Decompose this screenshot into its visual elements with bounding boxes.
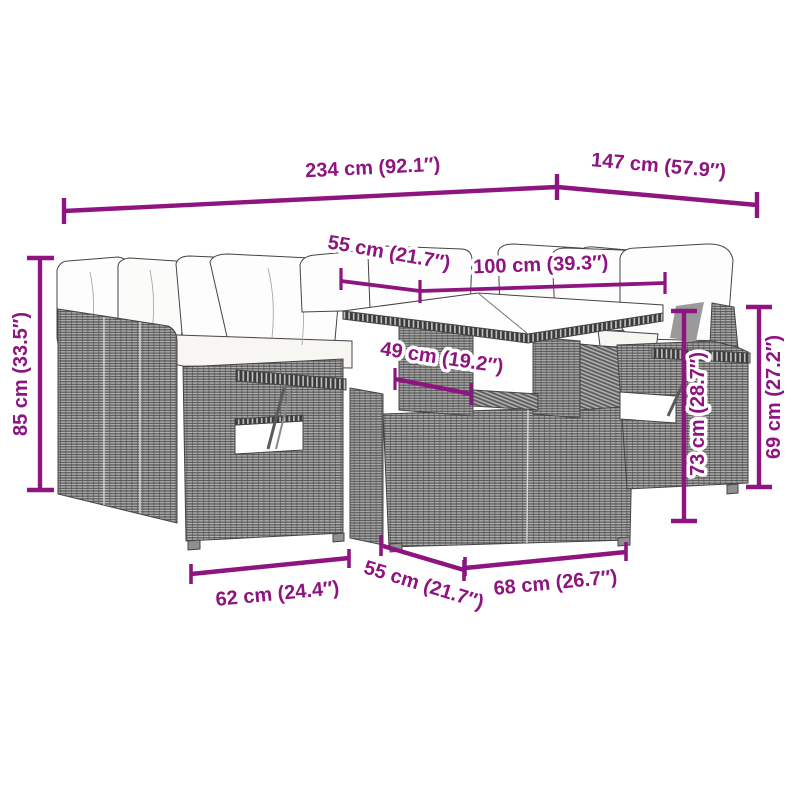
svg-text:73 cm (28.7″): 73 cm (28.7″)	[687, 352, 709, 476]
svg-text:85 cm (33.5″): 85 cm (33.5″)	[10, 312, 32, 436]
svg-text:55 cm (21.7″): 55 cm (21.7″)	[361, 557, 486, 614]
svg-text:147 cm (57.9″): 147 cm (57.9″)	[590, 149, 727, 183]
svg-text:234 cm (92.1″): 234 cm (92.1″)	[305, 154, 441, 183]
svg-text:69 cm (27.2″): 69 cm (27.2″)	[763, 335, 785, 459]
svg-text:62 cm (24.4″): 62 cm (24.4″)	[215, 577, 341, 611]
svg-text:68 cm (26.7″): 68 cm (26.7″)	[493, 566, 619, 600]
